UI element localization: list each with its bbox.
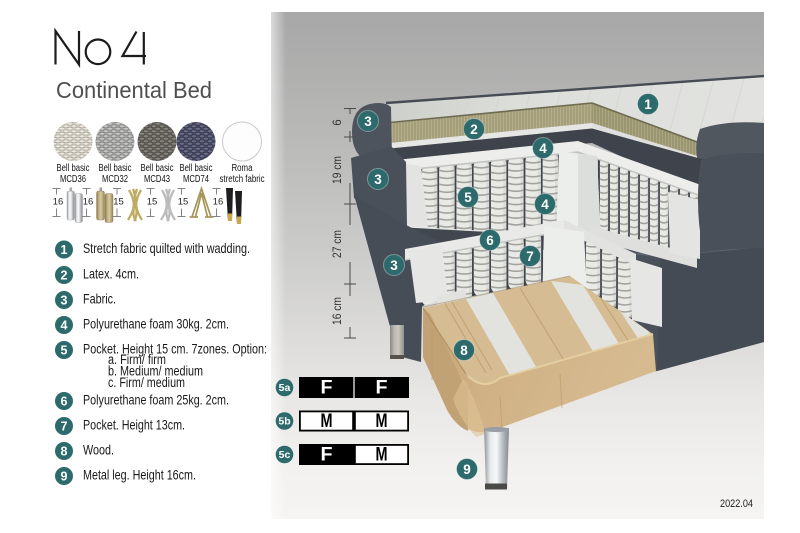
svg-text:Latex. 4cm.: Latex. 4cm.	[83, 265, 139, 281]
svg-text:6: 6	[486, 233, 494, 248]
svg-text:16 cm: 16 cm	[332, 297, 344, 325]
svg-text:2022.04: 2022.04	[720, 498, 753, 510]
svg-text:MCD36: MCD36	[60, 174, 86, 185]
svg-text:Stretch fabric quilted with wa: Stretch fabric quilted with wadding.	[83, 240, 250, 256]
svg-text:8: 8	[61, 444, 68, 458]
svg-text:6: 6	[332, 119, 344, 125]
svg-text:F: F	[376, 378, 388, 399]
svg-text:3: 3	[390, 258, 398, 273]
svg-text:Bell basic: Bell basic	[141, 163, 174, 174]
svg-text:Wood.: Wood.	[83, 441, 114, 457]
svg-text:2: 2	[470, 122, 478, 137]
svg-text:MCD74: MCD74	[183, 174, 209, 185]
svg-text:3: 3	[61, 293, 68, 307]
svg-text:9: 9	[61, 469, 68, 483]
svg-text:15: 15	[113, 197, 124, 208]
svg-text:5a: 5a	[279, 382, 291, 394]
svg-text:F: F	[321, 378, 333, 399]
svg-text:9: 9	[463, 462, 471, 477]
svg-text:Fabric.: Fabric.	[83, 290, 116, 306]
svg-text:4: 4	[541, 197, 549, 212]
svg-text:Bell basic: Bell basic	[99, 163, 132, 174]
svg-text:16: 16	[83, 197, 94, 208]
svg-text:c. Firm/ medium: c. Firm/ medium	[108, 375, 185, 390]
svg-text:7: 7	[61, 419, 68, 433]
svg-text:5: 5	[464, 190, 472, 205]
svg-text:1: 1	[644, 97, 652, 112]
svg-text:5c: 5c	[279, 449, 291, 461]
svg-text:Polyurethane foam 25kg. 2cm.: Polyurethane foam 25kg. 2cm.	[83, 391, 229, 407]
svg-text:Polyurethane foam 30kg. 2cm.: Polyurethane foam 30kg. 2cm.	[83, 315, 229, 331]
svg-text:19 cm: 19 cm	[332, 156, 344, 184]
svg-text:8: 8	[460, 343, 468, 358]
svg-text:Roma: Roma	[232, 163, 253, 174]
svg-text:16: 16	[213, 197, 224, 208]
svg-text:6: 6	[61, 394, 68, 408]
svg-text:4: 4	[539, 141, 547, 156]
svg-text:5: 5	[61, 343, 68, 357]
svg-text:MCD32: MCD32	[102, 174, 128, 185]
svg-text:F: F	[321, 445, 333, 466]
svg-text:5b: 5b	[278, 416, 290, 428]
svg-text:3: 3	[374, 172, 382, 187]
svg-text:15: 15	[147, 197, 158, 208]
svg-text:16: 16	[53, 197, 64, 208]
svg-text:M: M	[376, 411, 388, 432]
svg-text:stretch fabric: stretch fabric	[220, 174, 265, 185]
svg-text:Continental Bed: Continental Bed	[56, 77, 212, 103]
svg-text:2: 2	[61, 268, 68, 282]
svg-text:Bell basic: Bell basic	[57, 163, 90, 174]
svg-text:MCD43: MCD43	[144, 174, 170, 185]
svg-text:Metal leg. Height 16cm.: Metal leg. Height 16cm.	[83, 466, 196, 482]
svg-text:15: 15	[178, 197, 189, 208]
svg-text:M: M	[376, 445, 388, 466]
svg-text:3: 3	[364, 114, 372, 129]
svg-text:27 cm: 27 cm	[332, 230, 344, 258]
svg-text:Pocket. Height 13cm.: Pocket. Height 13cm.	[83, 416, 185, 432]
svg-text:1: 1	[61, 243, 68, 257]
svg-text:M: M	[321, 411, 333, 432]
svg-text:4: 4	[61, 318, 68, 332]
svg-text:7: 7	[526, 249, 534, 264]
svg-text:Bell basic: Bell basic	[180, 163, 213, 174]
